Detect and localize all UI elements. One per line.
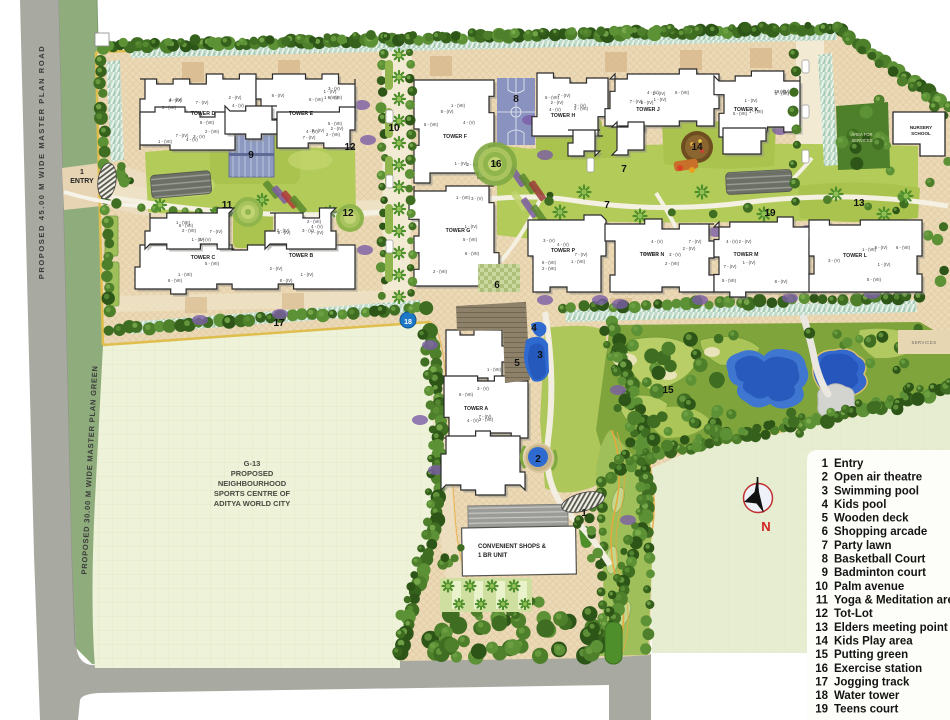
svg-text:3 - (V): 3 - (V) xyxy=(477,386,489,391)
svg-text:3 - (V): 3 - (V) xyxy=(543,238,555,243)
svg-text:3 - (V): 3 - (V) xyxy=(669,252,681,257)
svg-text:PROPOSED 45.00 M WIDE MASTER: PROPOSED 45.00 M WIDE MASTER PLAN ROAD xyxy=(37,45,46,280)
svg-text:6 - (VII): 6 - (VII) xyxy=(896,245,911,250)
svg-text:16: 16 xyxy=(815,663,828,675)
svg-text:6 - (VII): 6 - (VII) xyxy=(542,260,557,265)
svg-text:TOWER B: TOWER B xyxy=(289,253,314,259)
svg-text:4 - (V): 4 - (V) xyxy=(232,103,244,108)
svg-text:4 - (V): 4 - (V) xyxy=(647,90,659,95)
svg-text:2 - (IV): 2 - (IV) xyxy=(331,126,344,131)
svg-text:8 - (IV): 8 - (IV) xyxy=(775,279,788,284)
svg-text:3 - (V): 3 - (V) xyxy=(302,228,314,233)
svg-text:7 - (IV): 7 - (IV) xyxy=(558,93,571,98)
svg-text:SCHOOL: SCHOOL xyxy=(911,131,931,136)
svg-text:1 - (VII): 1 - (VII) xyxy=(178,272,193,277)
svg-text:2 - (IV): 2 - (IV) xyxy=(683,246,696,251)
svg-text:2 - (IV): 2 - (IV) xyxy=(739,239,752,244)
svg-text:1 - (VII): 1 - (VII) xyxy=(176,220,191,225)
svg-text:Basketball Court: Basketball Court xyxy=(834,554,926,566)
svg-text:6 - (VII): 6 - (VII) xyxy=(168,278,183,283)
svg-text:4 - (V): 4 - (V) xyxy=(726,239,738,244)
svg-text:1 - (IV): 1 - (IV) xyxy=(465,224,478,229)
svg-text:TOWER L: TOWER L xyxy=(843,253,868,259)
svg-text:9: 9 xyxy=(822,567,828,579)
svg-text:1 - (VII): 1 - (VII) xyxy=(456,195,471,200)
svg-text:4 - (V): 4 - (V) xyxy=(463,120,475,125)
svg-text:5 - (VII): 5 - (VII) xyxy=(675,90,690,95)
svg-text:6 - (VII): 6 - (VII) xyxy=(459,392,474,397)
svg-text:5 - (VII): 5 - (VII) xyxy=(328,95,343,100)
svg-text:1 - (IV): 1 - (IV) xyxy=(324,89,337,94)
svg-text:11: 11 xyxy=(222,200,233,211)
svg-text:Shopping arcade: Shopping arcade xyxy=(834,526,927,538)
svg-text:Party lawn: Party lawn xyxy=(834,540,892,552)
svg-text:Jogging track: Jogging track xyxy=(834,676,910,688)
svg-text:7 - (IV): 7 - (IV) xyxy=(630,99,643,104)
svg-text:1 - (IV): 1 - (IV) xyxy=(878,262,891,267)
svg-text:10: 10 xyxy=(388,123,400,134)
svg-text:4: 4 xyxy=(531,323,537,334)
svg-text:2 - (IV): 2 - (IV) xyxy=(270,266,283,271)
svg-text:2 - (VII): 2 - (VII) xyxy=(307,219,322,224)
svg-text:6: 6 xyxy=(822,526,828,538)
svg-text:6 - (VII): 6 - (VII) xyxy=(200,120,215,125)
svg-text:5 - (VII): 5 - (VII) xyxy=(205,261,220,266)
svg-text:5 - (VII): 5 - (VII) xyxy=(867,277,882,282)
svg-text:Teens court: Teens court xyxy=(834,704,898,716)
svg-text:5 - (VII): 5 - (VII) xyxy=(733,111,748,116)
svg-text:Badminton court: Badminton court xyxy=(834,567,926,579)
svg-text:TOWER E: TOWER E xyxy=(289,111,314,117)
svg-text:TOWER J: TOWER J xyxy=(636,107,660,113)
svg-text:18: 18 xyxy=(815,690,828,702)
svg-text:6: 6 xyxy=(494,280,500,291)
svg-text:AREA FOR: AREA FOR xyxy=(851,132,872,137)
svg-text:12: 12 xyxy=(342,208,354,219)
svg-text:3 - (V): 3 - (V) xyxy=(471,196,483,201)
svg-text:15: 15 xyxy=(815,649,828,661)
svg-text:2 - (IV): 2 - (IV) xyxy=(551,100,564,105)
svg-text:G-13: G-13 xyxy=(244,459,261,468)
svg-text:Palm avenue: Palm avenue xyxy=(834,581,904,593)
svg-text:TOWER F: TOWER F xyxy=(443,134,467,140)
svg-text:5: 5 xyxy=(822,513,829,525)
svg-text:19: 19 xyxy=(764,208,776,219)
svg-text:5: 5 xyxy=(514,358,520,369)
svg-text:2 - (IV): 2 - (IV) xyxy=(277,228,290,233)
svg-text:17: 17 xyxy=(273,318,285,329)
svg-text:6 - (VII): 6 - (VII) xyxy=(465,251,480,256)
svg-text:Open air theatre: Open air theatre xyxy=(834,472,922,484)
svg-text:7: 7 xyxy=(822,540,828,552)
svg-text:TOWER D: TOWER D xyxy=(191,111,216,117)
svg-text:1 - (IV): 1 - (IV) xyxy=(745,98,758,103)
svg-text:8 - (IV): 8 - (IV) xyxy=(280,278,293,283)
svg-text:8: 8 xyxy=(822,554,829,566)
svg-text:Entry: Entry xyxy=(834,458,864,470)
svg-text:6 - (VII): 6 - (VII) xyxy=(545,95,560,100)
svg-text:1 - (IV): 1 - (IV) xyxy=(654,97,667,102)
svg-text:2 - (VII): 2 - (VII) xyxy=(182,228,197,233)
svg-text:13: 13 xyxy=(853,198,865,209)
svg-text:2 - (VII): 2 - (VII) xyxy=(479,417,494,422)
svg-text:TOWER A: TOWER A xyxy=(464,406,488,412)
svg-text:7: 7 xyxy=(621,164,627,175)
svg-text:2 - (VII): 2 - (VII) xyxy=(665,261,680,266)
svg-text:1 BR UNIT: 1 BR UNIT xyxy=(478,553,508,559)
svg-text:TOWER P: TOWER P xyxy=(551,248,576,254)
svg-text:N: N xyxy=(761,519,770,534)
svg-text:1 - (VII): 1 - (VII) xyxy=(158,139,173,144)
svg-text:Kids Play area: Kids Play area xyxy=(834,636,913,648)
svg-text:4: 4 xyxy=(822,499,829,511)
svg-text:5 - (VII): 5 - (VII) xyxy=(722,278,737,283)
svg-text:7 - (IV): 7 - (IV) xyxy=(196,100,209,105)
svg-text:4 - (V): 4 - (V) xyxy=(467,418,479,423)
svg-text:8: 8 xyxy=(513,94,519,105)
svg-text:2 - (IV): 2 - (IV) xyxy=(229,95,242,100)
svg-text:CONVENIENT SHOPS &: CONVENIENT SHOPS & xyxy=(478,544,547,550)
svg-text:13: 13 xyxy=(815,622,828,634)
svg-text:1 - (VII): 1 - (VII) xyxy=(749,109,764,114)
svg-text:9: 9 xyxy=(248,150,254,161)
svg-text:5 - (VII): 5 - (VII) xyxy=(463,237,478,242)
svg-text:4 - (V): 4 - (V) xyxy=(306,129,318,134)
svg-text:8 - (IV): 8 - (IV) xyxy=(272,93,285,98)
svg-text:3 - (V): 3 - (V) xyxy=(828,258,840,263)
svg-text:2 - (VII): 2 - (VII) xyxy=(433,269,448,274)
svg-text:19: 19 xyxy=(815,704,828,716)
svg-text:1 - (VII): 1 - (VII) xyxy=(487,367,502,372)
svg-text:Exercise station: Exercise station xyxy=(834,663,922,675)
svg-text:8 - (IV): 8 - (IV) xyxy=(875,245,888,250)
svg-text:TOWER H: TOWER H xyxy=(551,113,576,119)
svg-text:3: 3 xyxy=(822,485,828,497)
svg-text:2 - (VII): 2 - (VII) xyxy=(326,132,341,137)
svg-text:16: 16 xyxy=(490,159,502,170)
svg-text:14: 14 xyxy=(691,142,703,153)
svg-text:1 - (IV): 1 - (IV) xyxy=(743,260,756,265)
svg-text:5 - (VII): 5 - (VII) xyxy=(162,105,177,110)
svg-text:Wooden deck: Wooden deck xyxy=(834,513,909,525)
svg-text:15: 15 xyxy=(662,385,674,396)
svg-text:6 - (VII): 6 - (VII) xyxy=(309,97,324,102)
svg-text:7 - (IV): 7 - (IV) xyxy=(176,133,189,138)
svg-text:10: 10 xyxy=(815,581,828,593)
svg-text:14: 14 xyxy=(815,636,828,648)
svg-text:Kids pool: Kids pool xyxy=(834,499,886,511)
svg-text:18: 18 xyxy=(404,319,412,326)
svg-text:3 - (V): 3 - (V) xyxy=(193,134,205,139)
svg-text:5 - (VII): 5 - (VII) xyxy=(424,122,439,127)
svg-text:7 - (IV): 7 - (IV) xyxy=(689,239,702,244)
svg-text:8 - (IV): 8 - (IV) xyxy=(777,89,790,94)
svg-text:NEIGHBOURHOOD: NEIGHBOURHOOD xyxy=(218,479,287,488)
svg-text:TOWER M: TOWER M xyxy=(734,252,759,258)
svg-text:1: 1 xyxy=(581,508,587,519)
svg-text:4 - (V): 4 - (V) xyxy=(549,107,561,112)
svg-text:2: 2 xyxy=(822,472,828,484)
svg-text:12: 12 xyxy=(344,142,356,153)
svg-text:Elders meeting point: Elders meeting point xyxy=(834,622,948,634)
svg-text:2 - (VII): 2 - (VII) xyxy=(205,129,220,134)
svg-text:17: 17 xyxy=(815,676,828,688)
svg-text:7 - (IV): 7 - (IV) xyxy=(575,252,588,257)
svg-text:Yoga & Meditation area: Yoga & Meditation area xyxy=(834,595,950,607)
svg-text:8 - (IV): 8 - (IV) xyxy=(441,109,454,114)
svg-text:ENTRY: ENTRY xyxy=(70,178,94,185)
svg-text:3 - (V): 3 - (V) xyxy=(574,103,586,108)
svg-text:NURSERY: NURSERY xyxy=(910,125,932,130)
svg-text:8 - (IV): 8 - (IV) xyxy=(169,98,182,103)
svg-text:4 - (V): 4 - (V) xyxy=(651,239,663,244)
svg-text:6 - (VII): 6 - (VII) xyxy=(644,251,659,256)
svg-text:SERVICES: SERVICES xyxy=(911,340,936,345)
svg-text:1: 1 xyxy=(80,169,84,176)
svg-text:7 - (IV): 7 - (IV) xyxy=(303,135,316,140)
svg-text:ADITYA WORLD CITY: ADITYA WORLD CITY xyxy=(214,499,291,508)
svg-text:7: 7 xyxy=(604,200,610,211)
svg-text:1 - (VII): 1 - (VII) xyxy=(571,259,586,264)
svg-text:Water tower: Water tower xyxy=(834,690,900,702)
svg-text:1 - (VII): 1 - (VII) xyxy=(451,103,466,108)
svg-text:Swimming pool: Swimming pool xyxy=(834,485,919,497)
svg-text:11: 11 xyxy=(816,595,829,607)
svg-text:PROPOSED: PROPOSED xyxy=(231,469,274,478)
svg-text:Tot-Lot: Tot-Lot xyxy=(834,608,873,620)
svg-text:7 - (IV): 7 - (IV) xyxy=(210,229,223,234)
svg-text:12: 12 xyxy=(815,608,828,620)
svg-text:2: 2 xyxy=(535,454,541,465)
svg-text:1 - (IV): 1 - (IV) xyxy=(192,237,205,242)
svg-text:1: 1 xyxy=(822,458,829,470)
svg-text:1 - (IV): 1 - (IV) xyxy=(301,272,314,277)
svg-text:3: 3 xyxy=(537,350,543,361)
svg-text:8 - (IV): 8 - (IV) xyxy=(641,100,654,105)
svg-text:2 - (VII): 2 - (VII) xyxy=(542,266,557,271)
svg-text:7 - (IV): 7 - (IV) xyxy=(724,264,737,269)
svg-text:SERVICES: SERVICES xyxy=(851,138,872,143)
svg-text:4 - (V): 4 - (V) xyxy=(557,242,569,247)
svg-text:Putting green: Putting green xyxy=(834,649,908,661)
svg-text:SPORTS CENTRE OF: SPORTS CENTRE OF xyxy=(214,489,291,498)
